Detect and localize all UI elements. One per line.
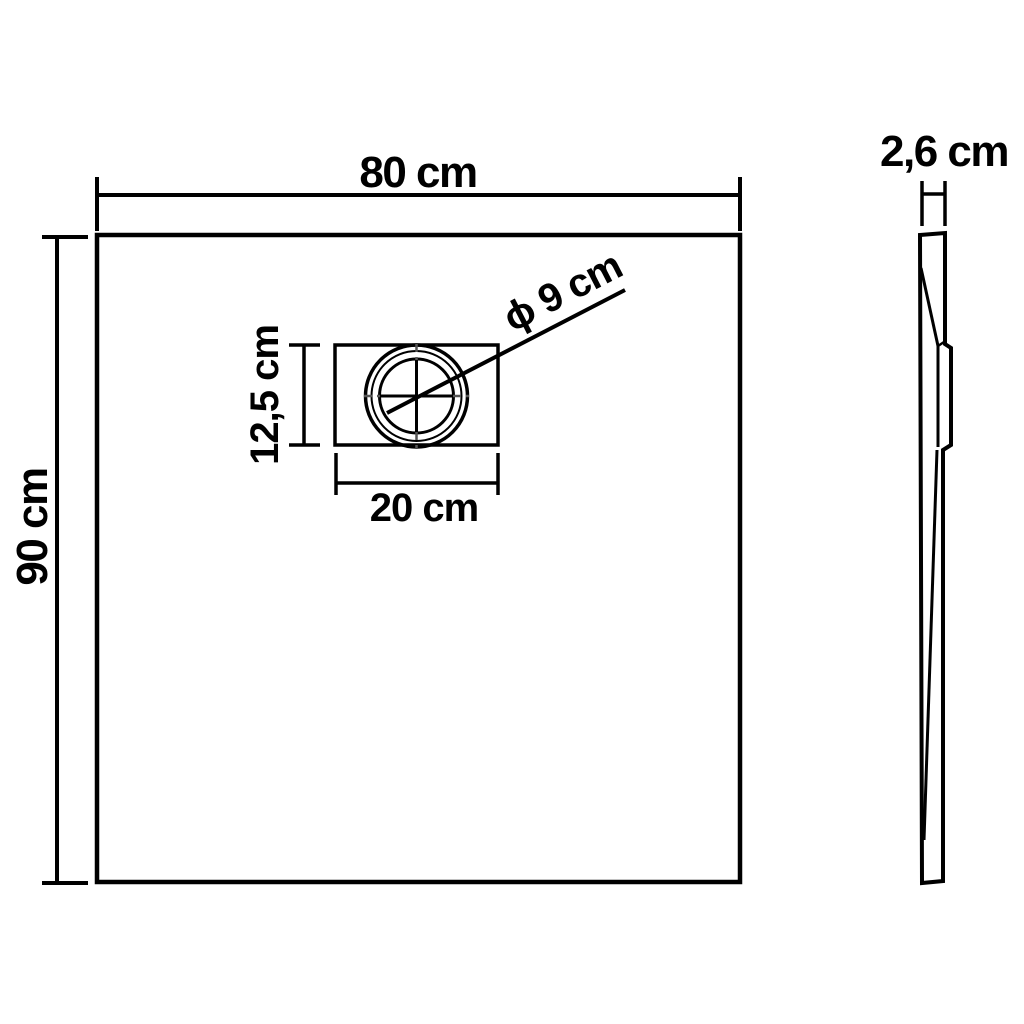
drain-diameter-label: ϕ 9 cm xyxy=(496,243,628,340)
front-view: 80 cm 90 cm xyxy=(8,148,740,883)
side-inner-slope-lower xyxy=(924,450,937,840)
height-dim-label: 90 cm xyxy=(8,468,57,585)
diagram-page: 80 cm 90 cm xyxy=(0,0,1024,1024)
height-dimension: 90 cm xyxy=(8,237,88,883)
width-dim-label: 80 cm xyxy=(359,148,476,197)
drain-height-dimension: 12,5 cm xyxy=(243,325,320,465)
tray-front-outline xyxy=(97,235,740,882)
thickness-dimension: 2,6 cm xyxy=(880,127,1008,226)
side-bump-top-connector xyxy=(938,342,944,346)
width-dimension: 80 cm xyxy=(97,148,740,231)
side-view: 2,6 cm xyxy=(880,127,1008,883)
drain-height-label: 12,5 cm xyxy=(243,325,287,465)
thickness-dim-label: 2,6 cm xyxy=(880,127,1008,176)
diagram-canvas: 80 cm 90 cm xyxy=(0,0,1024,1024)
drain-width-dimension: 20 cm xyxy=(336,453,498,530)
drain-detail: ϕ 9 cm 12,5 cm 20 cm xyxy=(243,243,629,530)
drain-width-label: 20 cm xyxy=(370,486,478,530)
side-inner-slope-upper xyxy=(921,268,938,346)
